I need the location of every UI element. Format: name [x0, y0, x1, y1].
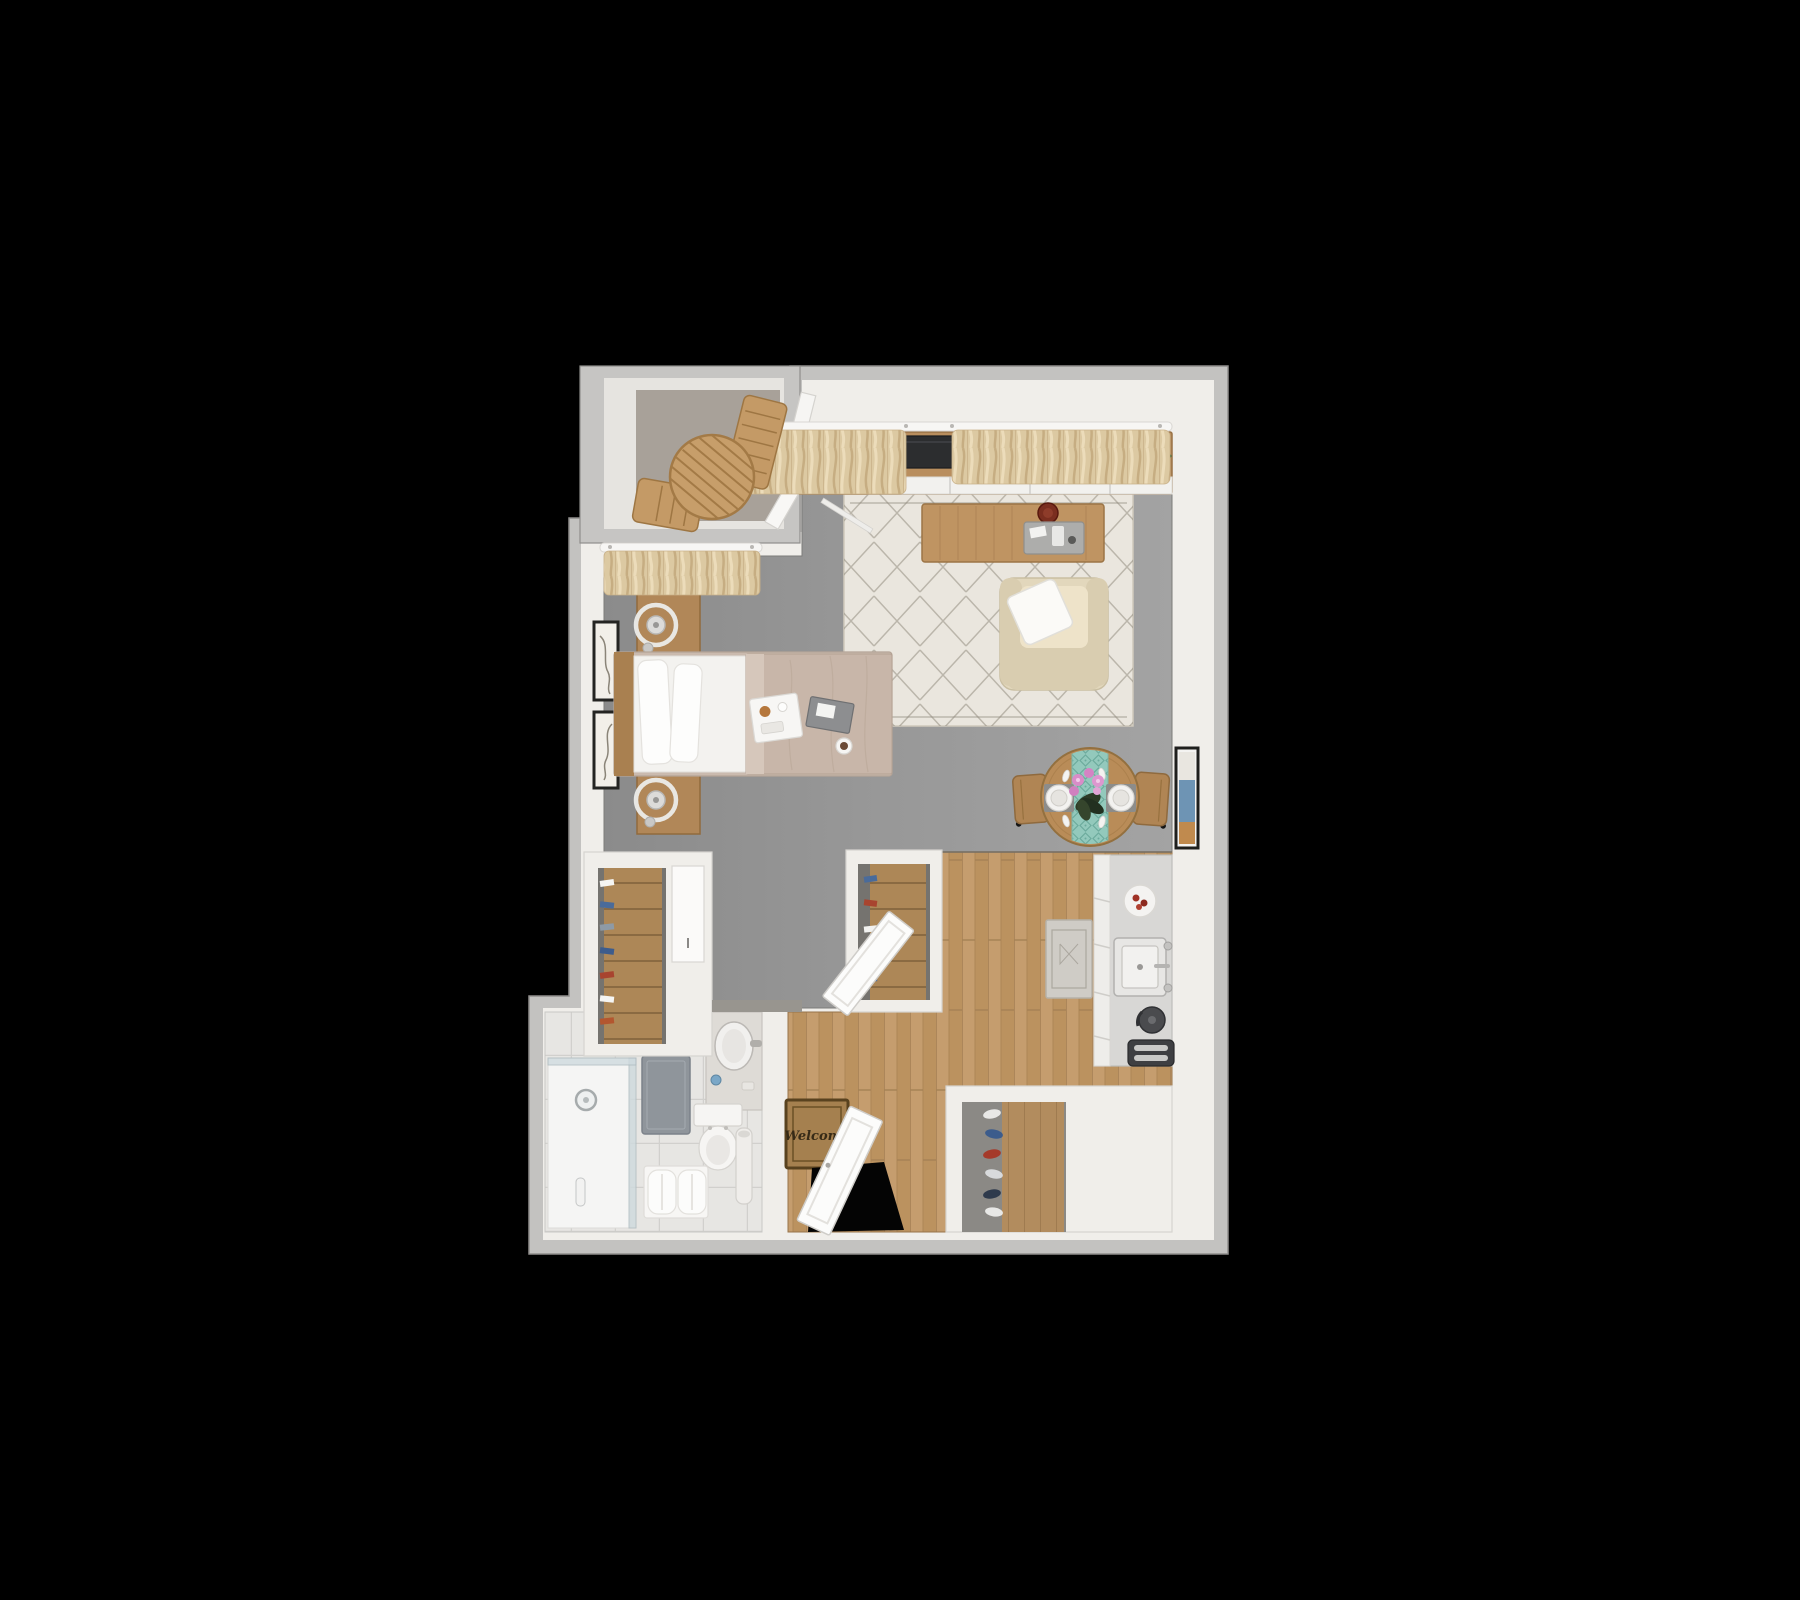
armchair-back [1006, 646, 1102, 690]
kettle-lid [1148, 1016, 1156, 1024]
plate-with-food [1124, 885, 1156, 917]
bed [614, 652, 892, 776]
floor-vase [736, 1128, 752, 1204]
food-item [1136, 904, 1142, 910]
toilet-seat [706, 1135, 730, 1165]
bedroom-window-curtains [600, 543, 762, 595]
toilet-hinge [724, 1126, 728, 1130]
faucet-handle [1164, 942, 1172, 950]
vanity-sink-basin [722, 1029, 746, 1063]
place-setting-right [1106, 784, 1136, 812]
bath-mat [642, 1056, 690, 1134]
floor-plan-canvas: Welcome [0, 0, 1800, 1600]
decor-bowl-inner [1043, 508, 1053, 518]
soap-dish [742, 1082, 754, 1090]
living-room-curtains [744, 422, 1172, 494]
shower-floor [548, 1058, 630, 1228]
shower-drain-center [583, 1097, 589, 1103]
coffee-table [922, 503, 1104, 562]
food-item [1133, 895, 1140, 902]
kitchen-runner-rug [1046, 920, 1092, 998]
faucet-handle [1164, 984, 1172, 992]
sink-drain [1137, 964, 1143, 970]
place-setting-left [1044, 784, 1074, 812]
toaster-slot [1134, 1055, 1168, 1061]
shoe-shelf [1002, 1102, 1064, 1232]
mug-coffee [840, 742, 848, 750]
wall-art-dining [1176, 748, 1198, 848]
armchair [1000, 578, 1108, 690]
curtain-panel [952, 430, 1170, 484]
toilet-hinge [708, 1126, 712, 1130]
breakfast-tray [749, 693, 803, 743]
bed-pillow [637, 659, 672, 764]
counter-drawer-fronts [1094, 855, 1110, 1066]
shoe-closet-bottom-right [946, 1086, 1172, 1232]
hand-shower-wand [576, 1178, 585, 1206]
tray-item [1068, 536, 1076, 544]
floor-plan-render: Welcome [0, 0, 1800, 1600]
shower-glass-right [629, 1058, 636, 1228]
bathroom-threshold [712, 1000, 802, 1012]
wardrobe-closet-left [584, 852, 712, 1056]
bed-headboard [614, 652, 634, 776]
vase-opening [738, 1131, 750, 1138]
shower-glass-top [548, 1058, 636, 1065]
closet-door-handle [687, 938, 689, 948]
toilet-tank [694, 1104, 742, 1126]
toaster [1128, 1040, 1174, 1066]
toothbrush-cup [711, 1075, 721, 1085]
tray-item [1052, 526, 1064, 546]
vanity-faucet [750, 1040, 762, 1047]
bed-pillow [669, 663, 702, 762]
curtain-panel [604, 551, 760, 595]
toaster-slot [1134, 1045, 1168, 1051]
